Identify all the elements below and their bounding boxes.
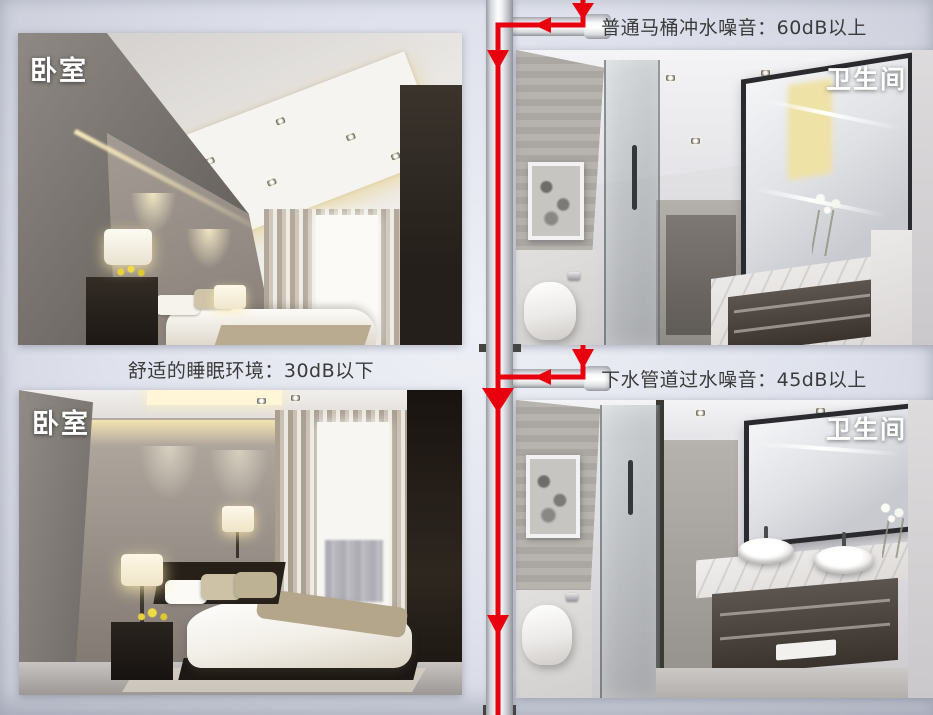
flow-arrow-left-icon bbox=[534, 369, 551, 385]
noise-comparison-infographic: 卧室 卧室 bbox=[0, 0, 933, 715]
flow-arrow-down-icon bbox=[487, 615, 509, 636]
flow-line-main bbox=[498, 0, 583, 715]
flow-line-branch bbox=[500, 345, 583, 377]
flow-arrow-down-icon bbox=[572, 3, 594, 20]
annotation-toilet-flush-noise: 普通马桶冲水噪音：60dB以上 bbox=[599, 13, 869, 40]
annotation-drain-pipe-noise: 下水管道过水噪音：45dB以上 bbox=[599, 365, 869, 392]
flow-arrow-left-icon bbox=[534, 17, 551, 33]
flow-arrow-down-icon bbox=[482, 388, 514, 413]
flow-arrow-down-icon bbox=[487, 50, 509, 70]
flow-arrow-down-icon bbox=[572, 349, 594, 369]
annotation-sleep-environment: 舒适的睡眠环境：30dB以下 bbox=[111, 356, 391, 383]
